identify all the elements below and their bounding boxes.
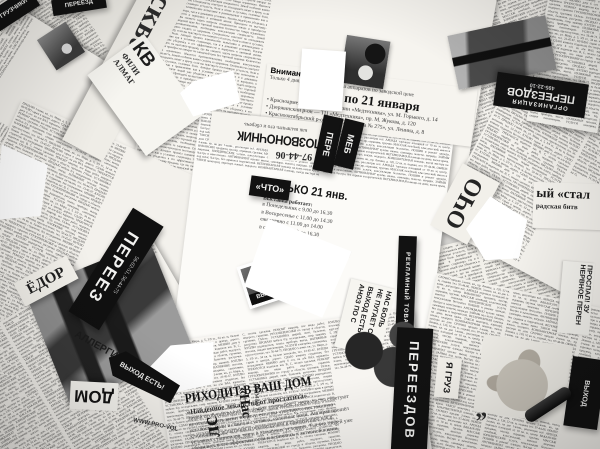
chip-gruz: Я ГРУЗ — [434, 357, 462, 399]
newspaper-collage: ПРОДАЮ 1-комн. кв., ул. Мира, д. 5, 3/9 … — [0, 0, 600, 449]
dom-text: ДОМ — [74, 385, 114, 407]
stal-headline: ый «стал — [536, 185, 590, 202]
gruz-text: Я ГРУЗ — [441, 362, 454, 394]
headline-prospal: ПРОСПАЛ! ЗУ НЕРВНОЕ ПЕРЕН — [557, 261, 595, 336]
big-letters-lo: лс — [196, 403, 244, 449]
photo-clipping — [340, 35, 391, 89]
headline-dom: ДОМ — [69, 381, 118, 411]
headline-stal: ый «стал радская битв — [532, 182, 600, 230]
blank-paper-scrap — [298, 49, 346, 112]
banner-pereezdov-vertical: ПЕРЕЕЗДОВ — [391, 327, 433, 449]
quote-mark: ” — [474, 407, 499, 436]
stal-subhead: радская битв — [536, 202, 600, 212]
